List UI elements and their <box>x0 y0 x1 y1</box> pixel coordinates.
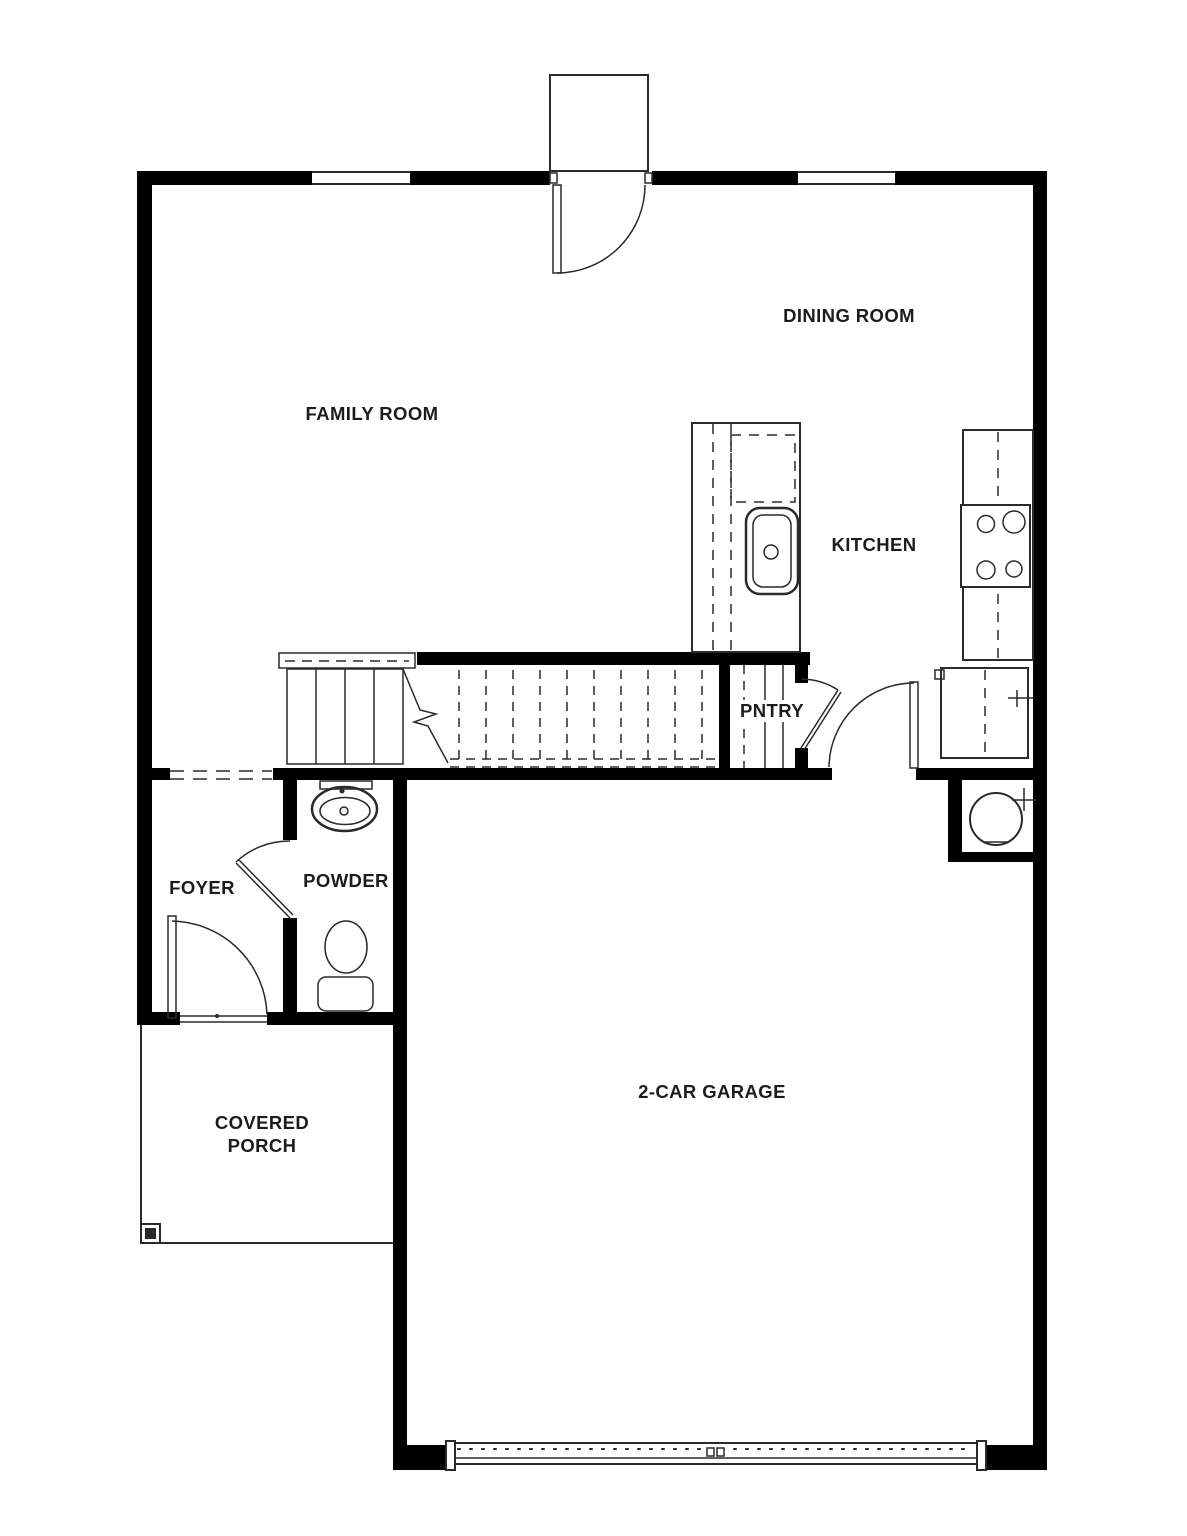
kitchen-sink <box>746 508 798 594</box>
powder-sink <box>312 781 377 831</box>
stove <box>961 505 1030 587</box>
entry-stoop <box>550 75 648 171</box>
garage-entry-door <box>829 682 918 768</box>
powder-door <box>236 841 293 918</box>
kitchen-label: KITCHEN <box>831 534 916 556</box>
covered-porch-label: COVERED PORCH <box>202 1111 322 1157</box>
pantry-label: PNTRY <box>737 700 807 722</box>
powder-room-label: POWDER <box>303 870 389 892</box>
floor-plan-drawing <box>0 0 1187 1536</box>
stairs <box>279 653 716 767</box>
floor-plan-canvas: FAMILY ROOM DINING ROOM KITCHEN PNTRY FO… <box>0 0 1187 1536</box>
faucet-icon <box>340 789 345 794</box>
entry-door <box>550 173 652 273</box>
walls <box>137 171 1047 1470</box>
water-heater <box>970 788 1036 845</box>
drain-icon <box>340 807 348 815</box>
garage-label: 2-CAR GARAGE <box>638 1081 786 1103</box>
window-right <box>798 172 895 184</box>
toilet <box>318 921 373 1011</box>
foyer-label: FOYER <box>169 877 235 899</box>
front-door <box>168 916 267 1022</box>
dining-room-label: DINING ROOM <box>783 305 915 327</box>
cased-opening <box>170 771 272 779</box>
garage-door <box>446 1441 986 1470</box>
refrigerator <box>935 668 1033 758</box>
stairs-dashed-treads <box>450 670 716 767</box>
family-room-label: FAMILY ROOM <box>306 403 439 425</box>
window-left <box>312 172 410 184</box>
stair-break-line <box>403 669 448 763</box>
